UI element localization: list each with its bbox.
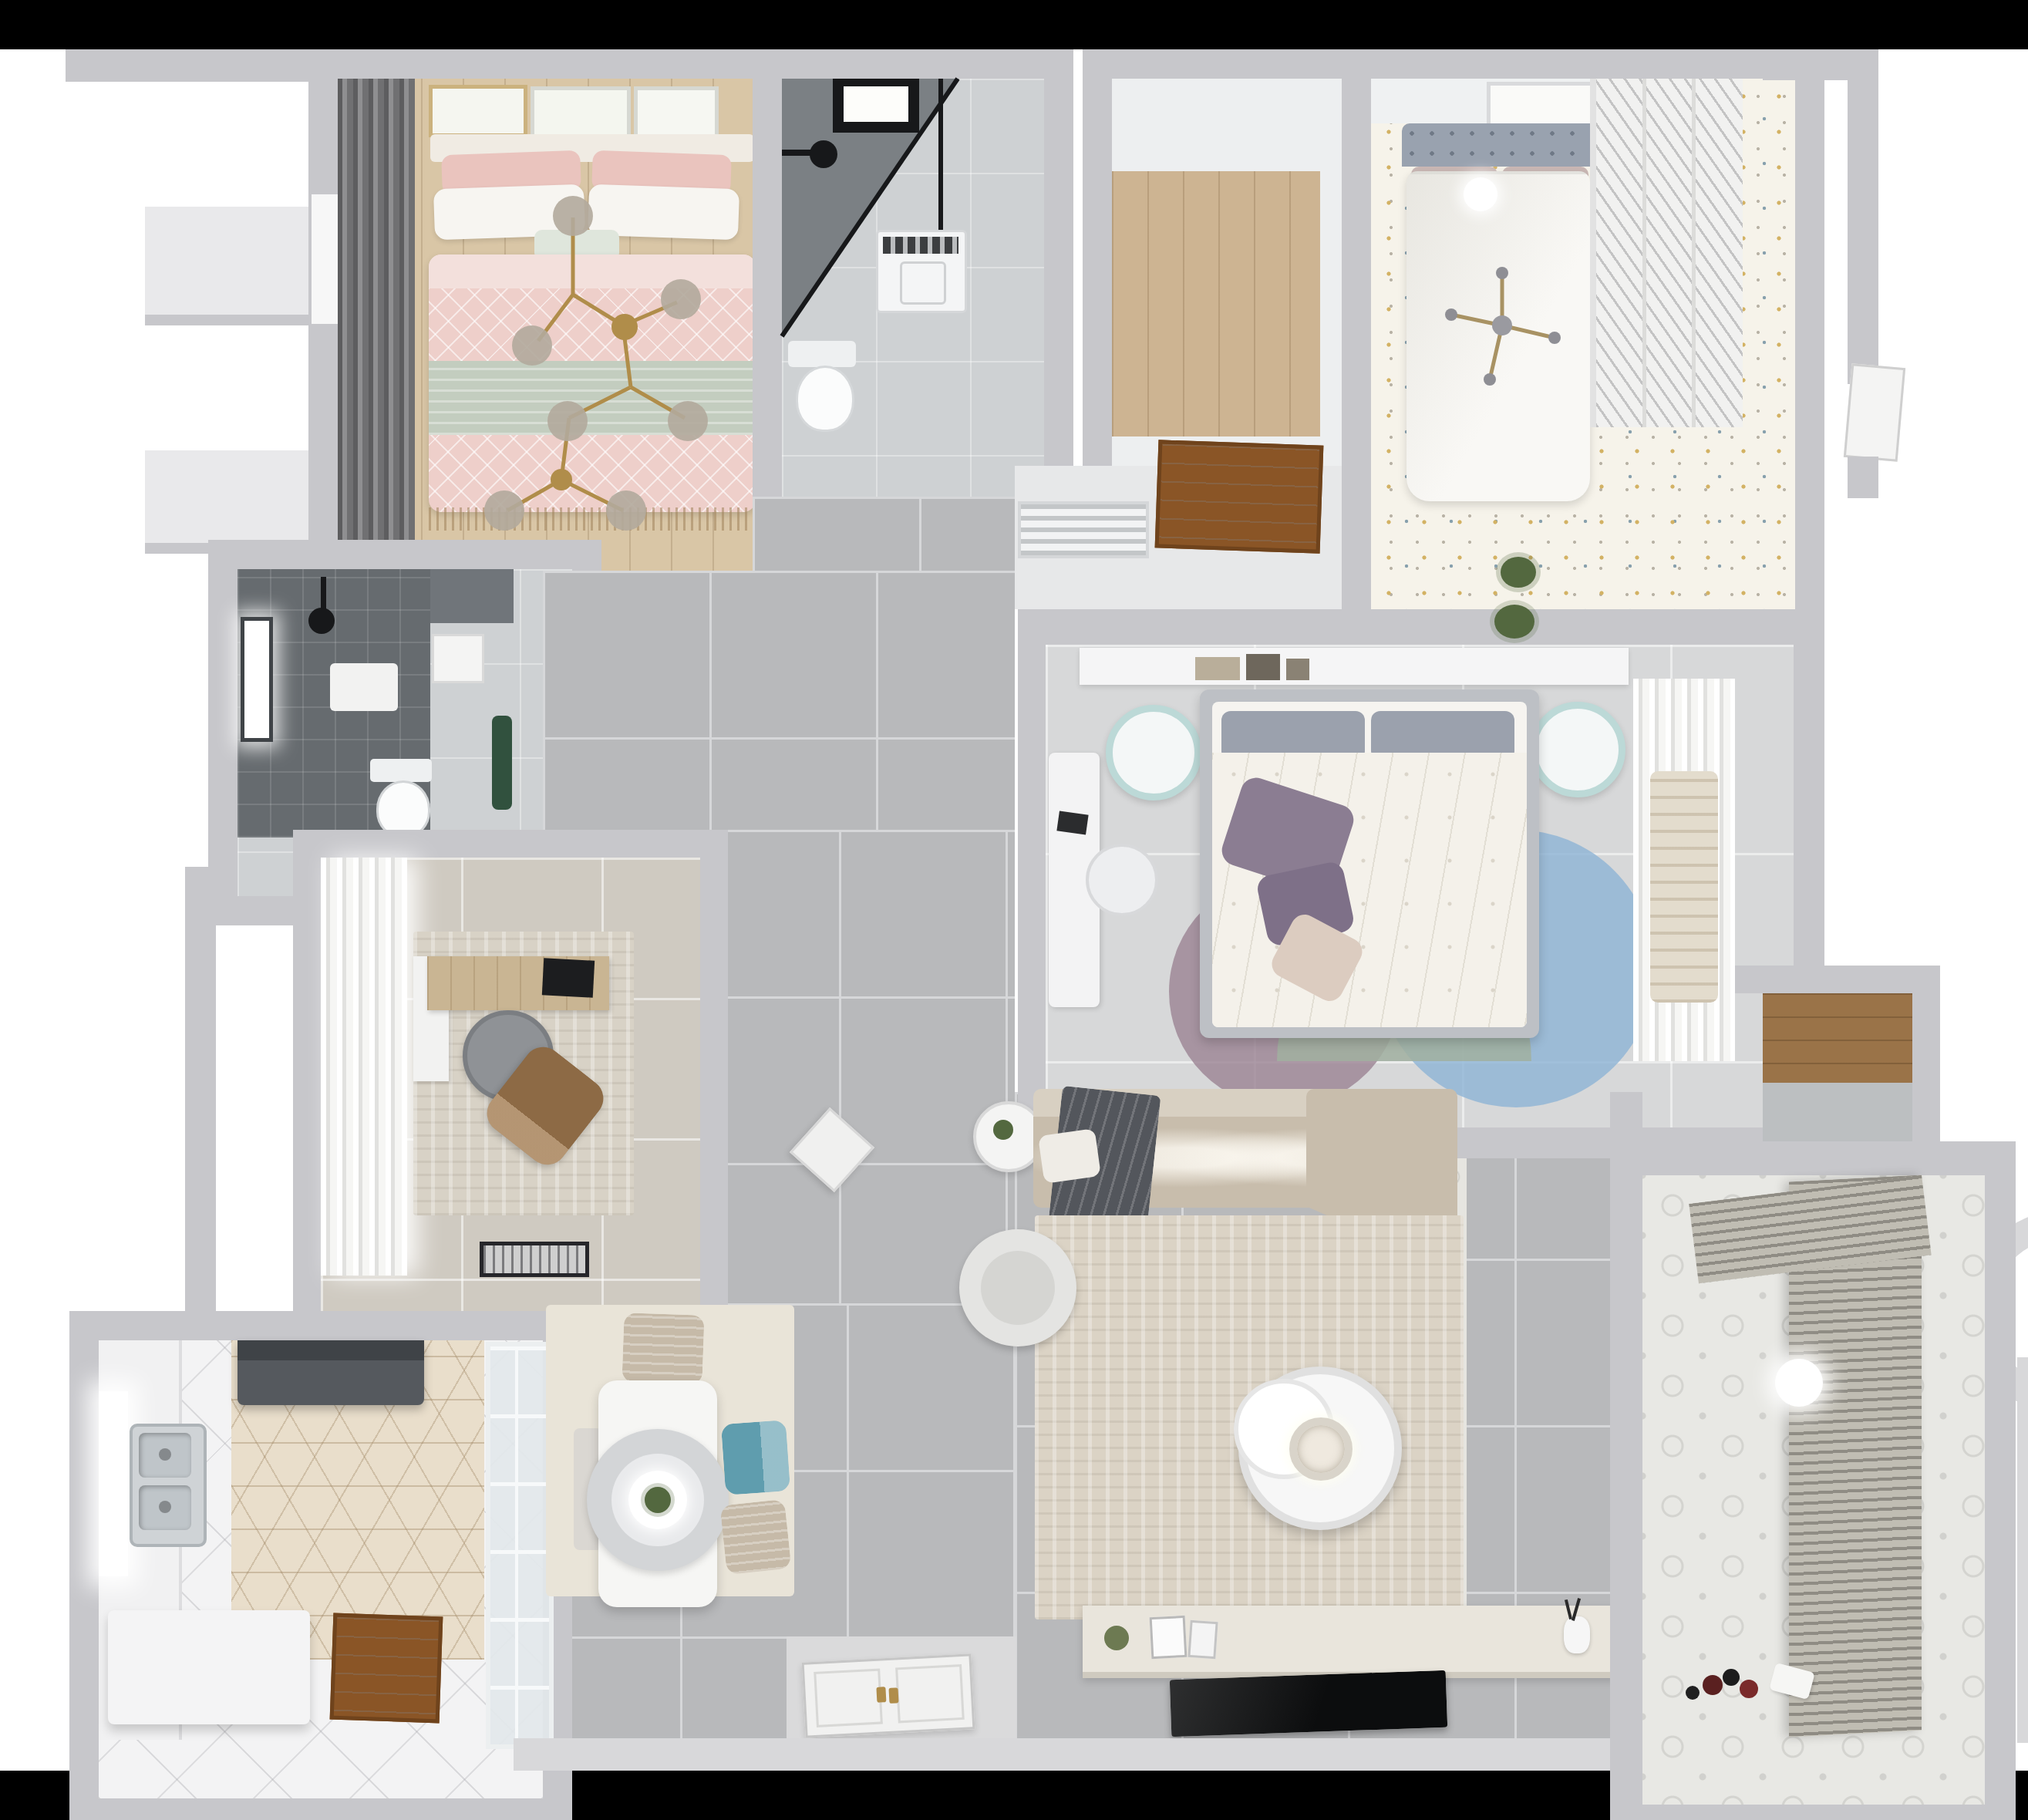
shower-head-icon (810, 140, 837, 168)
range-hood (237, 1340, 424, 1405)
shaft-wall-right (1848, 49, 1878, 384)
door-handle (888, 1687, 898, 1704)
wood-door-top (1155, 440, 1324, 553)
bedside-stool (1530, 702, 1625, 797)
wood-shelf (1763, 993, 1912, 1083)
exterior-wall-left (185, 867, 216, 1311)
toy (1723, 1669, 1740, 1686)
desk-chair (1086, 844, 1158, 916)
front-door (802, 1653, 975, 1737)
shower-head-icon (308, 608, 335, 634)
dining-chair-beige (622, 1313, 704, 1385)
decor-vase (1564, 1616, 1590, 1653)
tufted-headboard (1402, 123, 1602, 167)
glass-partition (486, 1342, 554, 1749)
laptop (1056, 811, 1088, 834)
exterior-wall-top-left (66, 49, 322, 82)
bath-mat (330, 663, 398, 711)
faucet (159, 1501, 171, 1513)
dark-wall-band (430, 569, 514, 623)
door-mat (480, 1242, 589, 1277)
headboard-shelf (1080, 648, 1629, 685)
wall-art-frame (531, 86, 631, 139)
toilet-bowl (796, 366, 854, 432)
sofa-pillow (1038, 1128, 1101, 1184)
sheer-closet-curtain (1633, 679, 1735, 1061)
bedroom-window-slit (312, 194, 338, 324)
room-study (293, 830, 728, 1359)
wood-plank-floor (1112, 171, 1320, 436)
bedside-stool (1106, 705, 1201, 800)
dining-chair-teal (721, 1420, 790, 1495)
exterior-ledge-upper (145, 207, 310, 325)
louvered-wardrobe (1590, 79, 1743, 427)
exterior-ledge-lower (145, 450, 310, 554)
coffee-table-center (1289, 1417, 1353, 1481)
decor-plate (1104, 1626, 1129, 1650)
niche-interior (1763, 993, 1912, 1148)
wall-art-frame (429, 85, 527, 137)
armchair-seat (981, 1251, 1055, 1325)
gold-branch-chandelier-icon (446, 187, 723, 526)
vent-grille-icon (1018, 501, 1149, 558)
door-handle (876, 1687, 886, 1703)
door-panel (895, 1664, 965, 1723)
toilet-tank (370, 759, 432, 782)
hall-floor (753, 497, 1015, 571)
window-glow (99, 1391, 128, 1576)
side-table-plant (993, 1120, 1013, 1140)
wardrobe-divider (1692, 79, 1696, 427)
door-panel (814, 1669, 883, 1727)
skylight-glow (844, 86, 908, 122)
monitor (542, 958, 595, 997)
shaft-wall-stub (1848, 457, 1878, 498)
toy (1686, 1686, 1700, 1700)
books (1286, 659, 1309, 680)
washing-machine (876, 230, 967, 313)
letterbox-top (0, 0, 2028, 49)
room-bedroom-top-right (1342, 49, 1824, 679)
wall-plant (1494, 605, 1534, 639)
sphere-lamp (1464, 177, 1497, 211)
edge-artifact-sliver (2017, 1357, 2028, 1743)
toilet-tank (788, 341, 856, 367)
plant-centerpiece (645, 1487, 671, 1513)
washer-door (900, 261, 946, 305)
sphere-lamp (1775, 1359, 1823, 1407)
green-plant-strip (492, 716, 512, 810)
kitchen-island (108, 1610, 310, 1724)
study-curtains (321, 858, 407, 1276)
decor-frame (1150, 1616, 1187, 1659)
decor-frame (1187, 1620, 1218, 1659)
wall-art-frame (634, 86, 719, 139)
tv (1170, 1670, 1447, 1737)
dining-chair-beige (720, 1499, 792, 1575)
bottom-wall (514, 1738, 1612, 1771)
hanging-clothes (1650, 771, 1718, 1003)
toy (1703, 1675, 1723, 1695)
curtains (338, 79, 415, 541)
faucet (159, 1448, 171, 1461)
floorplan-render (0, 0, 2028, 1820)
wood-door (330, 1613, 443, 1724)
washer-controls (883, 237, 958, 254)
double-sink (130, 1424, 207, 1547)
books (1246, 654, 1280, 680)
wardrobe-divider (1642, 79, 1646, 427)
gold-cross-chandelier-icon (1440, 264, 1564, 387)
toy (1740, 1680, 1758, 1698)
plant (1501, 557, 1536, 588)
books (1195, 657, 1240, 680)
toilet-bowl (376, 780, 430, 838)
room-bedroom-center (1018, 609, 1824, 1158)
room-balcony (1610, 1141, 2016, 1820)
window (241, 617, 273, 742)
hall-floor (543, 571, 1015, 830)
niche-wall-top (1735, 966, 1940, 993)
wall-frame (432, 634, 484, 683)
exterior-door (1844, 363, 1905, 462)
